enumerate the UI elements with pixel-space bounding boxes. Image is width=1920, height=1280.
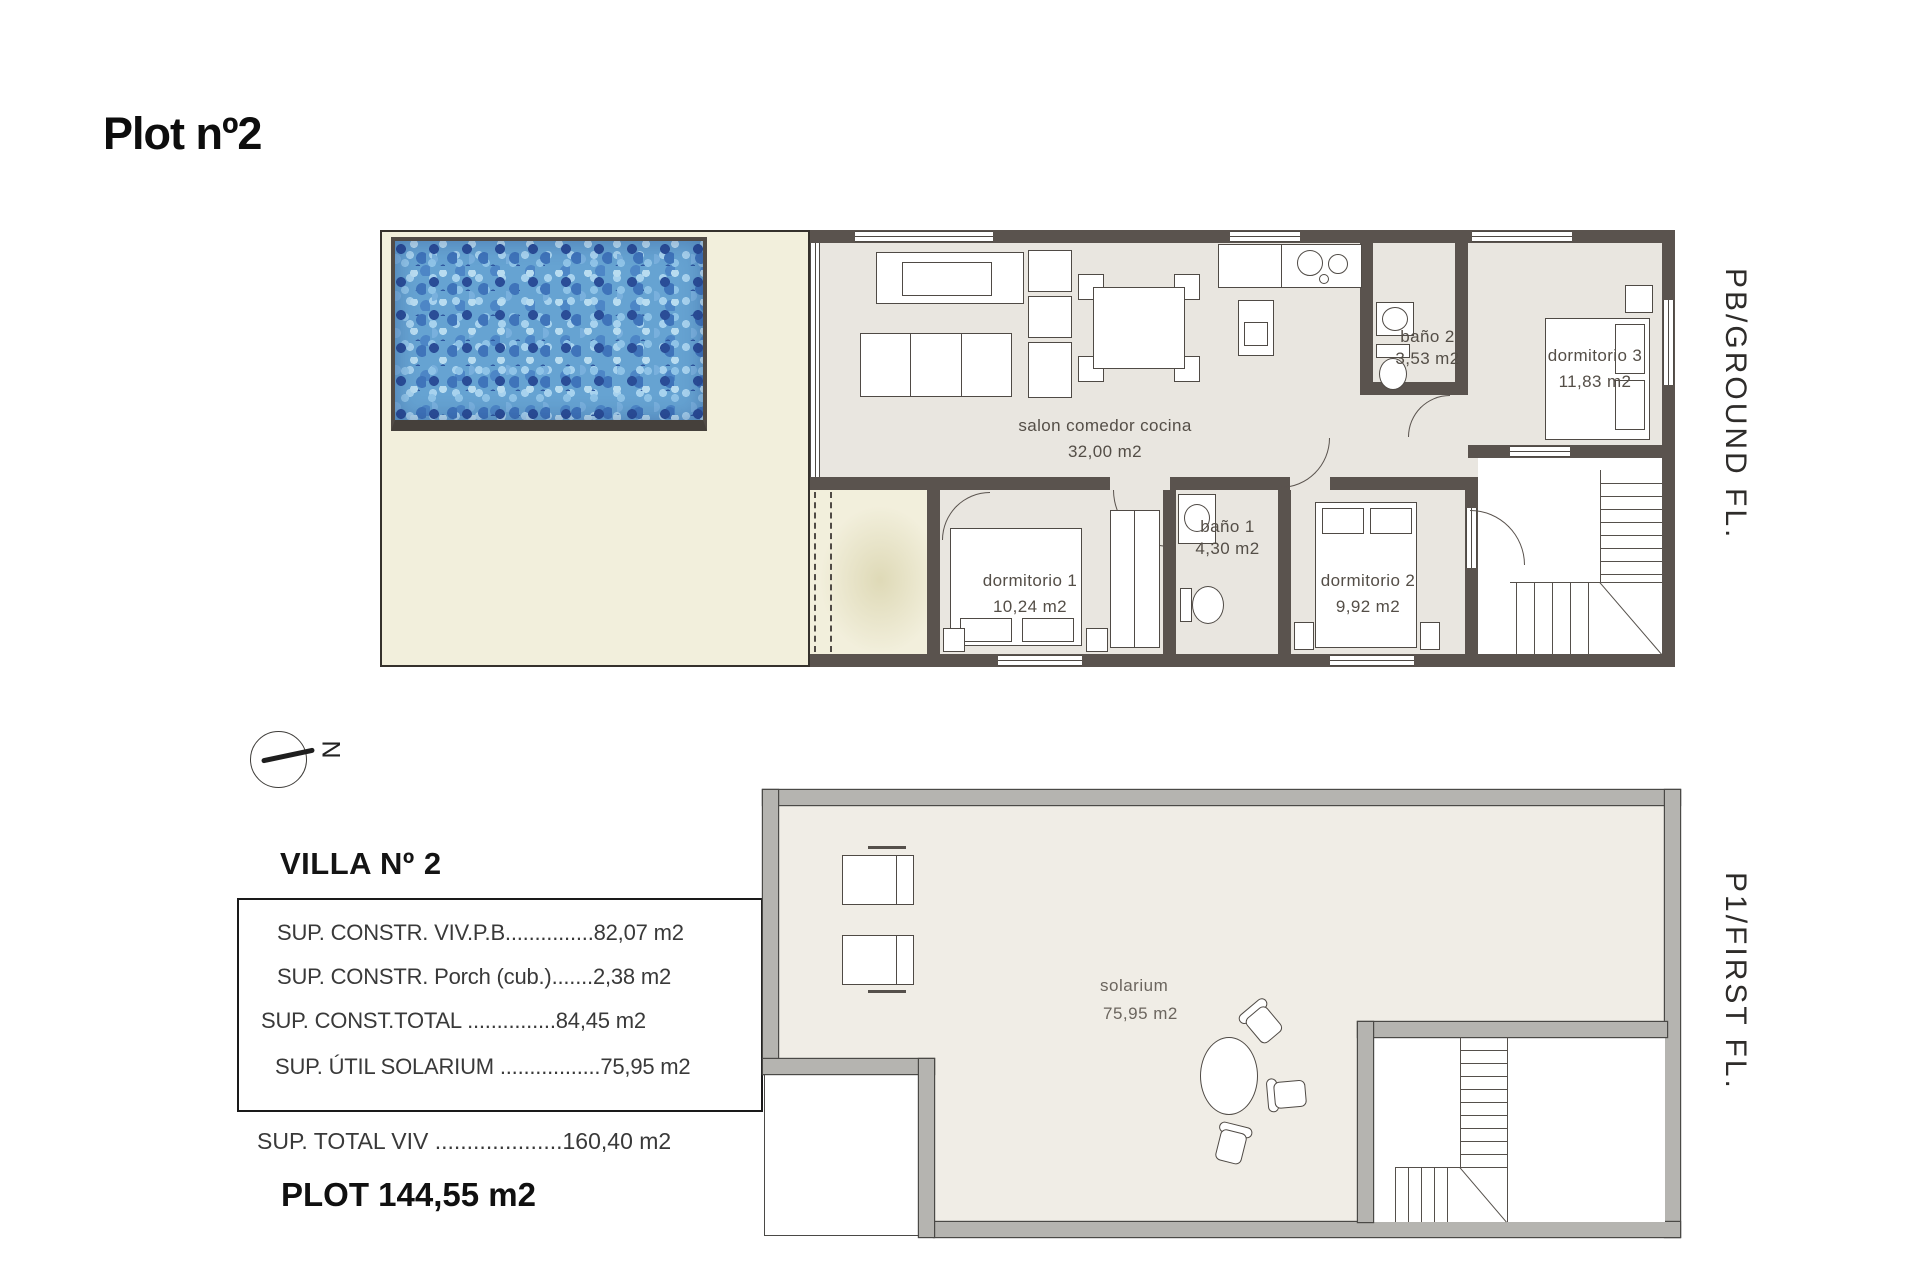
terrace-void — [764, 1074, 919, 1236]
room-label-dorm1: dormitorio 1 10,24 m2 — [950, 568, 1110, 619]
stair-void — [1373, 1037, 1665, 1222]
nightstand — [943, 628, 965, 652]
stair-tread — [1408, 1167, 1409, 1222]
room-label-bano1: baño 1 4,30 m2 — [1170, 516, 1285, 560]
room-label-dorm2: dormitorio 2 9,92 m2 — [1288, 568, 1448, 619]
stair-tread — [1600, 548, 1662, 549]
summary-row: SUP. ÚTIL SOLARIUM .................75,9… — [275, 1054, 690, 1080]
stair-tread — [1460, 1050, 1507, 1051]
window — [1510, 446, 1570, 457]
sofa-seats — [860, 333, 1012, 397]
side-table — [868, 990, 906, 993]
sun-lounger — [842, 935, 914, 985]
pillow — [1322, 508, 1364, 534]
garden-area — [380, 230, 810, 667]
stair-tread — [1600, 574, 1662, 575]
surface-summary-table: SUP. CONSTR. VIV.P.B...............82,07… — [237, 898, 763, 1112]
stair-tread — [1570, 582, 1571, 654]
stair-tread — [1534, 582, 1535, 654]
stove-burner — [1328, 254, 1348, 274]
nightstand — [1420, 622, 1440, 650]
wall — [763, 790, 1680, 805]
wall — [1170, 477, 1290, 490]
wall — [1358, 1022, 1667, 1037]
sliding-glass-door — [810, 243, 820, 479]
patio-chair — [1266, 1075, 1311, 1113]
stove-burner — [1319, 274, 1329, 284]
pillow — [960, 618, 1012, 642]
stair-tread — [1460, 1154, 1507, 1155]
stair-tread — [1600, 496, 1662, 497]
dining-table — [1093, 287, 1185, 369]
window — [1230, 231, 1300, 242]
stair-landing-edge — [1510, 582, 1662, 583]
porch-dashed-line — [814, 492, 816, 652]
coffee-table — [902, 262, 992, 296]
summary-row: SUP. CONST.TOTAL ...............84,45 m2 — [261, 1008, 646, 1034]
stair-tread — [1460, 1115, 1507, 1116]
room-label-solarium-area: 75,95 m2 — [1103, 1004, 1178, 1024]
wall — [810, 477, 1110, 490]
shelf-unit — [1028, 250, 1072, 292]
stair-tread — [1600, 509, 1662, 510]
stair-edge — [1395, 1167, 1396, 1222]
stair-tread — [1516, 582, 1517, 654]
wall — [810, 654, 1675, 667]
floorplan-sheet: Plot nº2 — [0, 0, 1920, 1280]
stove-burner — [1297, 250, 1323, 276]
page-title: Plot nº2 — [103, 108, 261, 160]
wall — [1358, 1022, 1373, 1222]
stair-tread — [1460, 1102, 1507, 1103]
total-row: SUP. TOTAL VIV ....................160,4… — [257, 1128, 671, 1155]
wall — [1665, 790, 1680, 1237]
room-label-dorm3: dormitorio 3 11,83 m2 — [1515, 343, 1675, 394]
wall — [919, 1059, 934, 1237]
pillow — [1370, 508, 1412, 534]
window — [855, 231, 993, 242]
stair-tread — [1460, 1089, 1507, 1090]
patio-table — [1200, 1037, 1258, 1115]
window — [998, 655, 1082, 666]
pillow — [1022, 618, 1074, 642]
wardrobe — [1110, 510, 1160, 648]
summary-row: SUP. CONSTR. VIV.P.B...............82,07… — [277, 920, 684, 946]
window — [1472, 231, 1572, 242]
side-table — [1028, 342, 1072, 398]
nightstand — [1625, 285, 1653, 313]
stair-tread — [1460, 1141, 1507, 1142]
ground-floor-side-label: PB/GROUND FL. — [1718, 268, 1752, 540]
summary-row: SUP. CONSTR. Porch (cub.).......2,38 m2 — [277, 964, 671, 990]
stair-tread — [1600, 535, 1662, 536]
wall — [763, 790, 778, 1074]
wall — [934, 1222, 1680, 1237]
shelf-unit — [1028, 296, 1072, 338]
nightstand — [1086, 628, 1108, 652]
wall — [1330, 477, 1478, 490]
stair-edge — [1600, 470, 1601, 582]
first-floor-plan: solarium 75,95 m2 — [763, 790, 1680, 1237]
porch-dashed-line — [830, 492, 832, 652]
stair-tread — [1552, 582, 1553, 654]
stair-tread — [1460, 1063, 1507, 1064]
side-table — [868, 846, 906, 849]
window — [1330, 655, 1414, 666]
house-footprint: salon comedor cocina 32,00 m2 baño 2 3,5… — [810, 230, 1675, 667]
stair-tread — [1434, 1167, 1435, 1222]
stair-tread — [1600, 483, 1662, 484]
wall — [763, 1059, 934, 1074]
sun-lounger — [842, 855, 914, 905]
villa-heading: VILLA Nº 2 — [280, 846, 442, 882]
first-floor-side-label: P1/FIRST FL. — [1718, 872, 1752, 1091]
room-label-bano2: baño 2 3,53 m2 — [1375, 326, 1480, 370]
stair-tread — [1600, 522, 1662, 523]
plot-area-label: PLOT 144,55 m2 — [281, 1176, 536, 1214]
stair-tread — [1588, 582, 1589, 654]
room-label-salon: salon comedor cocina 32,00 m2 — [975, 413, 1235, 464]
kitchen-sink — [1244, 322, 1268, 346]
ground-floor-plan: salon comedor cocina 32,00 m2 baño 2 3,5… — [380, 230, 1675, 667]
stair-tread — [1460, 1076, 1507, 1077]
stair-tread — [1421, 1167, 1422, 1222]
wall — [1455, 243, 1468, 395]
stair-landing-edge — [1395, 1167, 1507, 1168]
toilet-bowl — [1192, 586, 1224, 624]
nightstand — [1294, 622, 1314, 650]
stair-tread — [1600, 561, 1662, 562]
swimming-pool — [391, 237, 707, 431]
stair-tread — [1460, 1128, 1507, 1129]
room-label-solarium: solarium — [1100, 976, 1168, 996]
stair-edge — [1507, 1037, 1508, 1222]
toilet-tank — [1180, 588, 1192, 622]
wall — [927, 490, 940, 654]
compass-north-letter: N — [316, 740, 345, 758]
stair-tread — [1447, 1167, 1448, 1222]
